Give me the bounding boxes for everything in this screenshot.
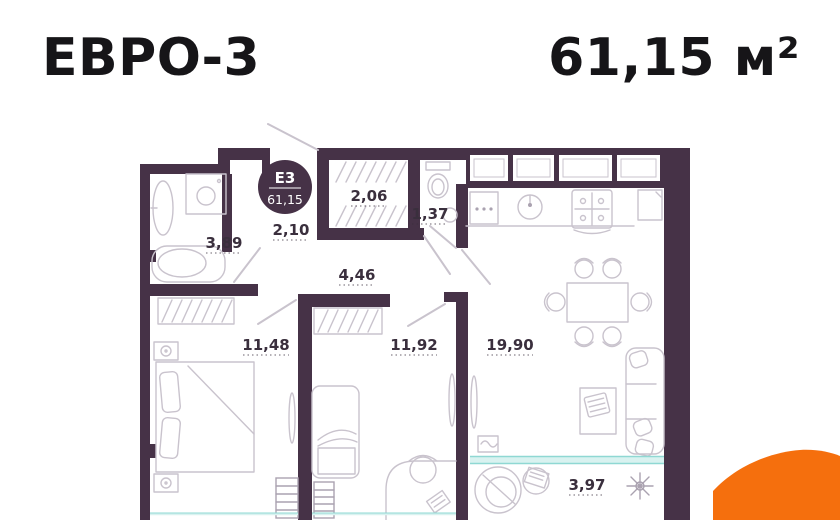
living-door-leaf-2 bbox=[462, 250, 490, 284]
stove-icon bbox=[572, 190, 612, 234]
nightstand-icon bbox=[154, 474, 178, 492]
bathroom-sink-icon bbox=[151, 181, 173, 235]
single-bed-icon bbox=[312, 386, 359, 478]
plant-icon bbox=[627, 473, 653, 499]
plant-pot-icon bbox=[478, 436, 498, 452]
dining-chairs bbox=[545, 259, 652, 347]
toilet-icon bbox=[426, 162, 450, 198]
wc-door-leaf bbox=[424, 236, 450, 274]
sofa-icon bbox=[626, 348, 664, 457]
tv-stand-icon bbox=[580, 388, 616, 434]
accent-corner-shape bbox=[713, 450, 840, 520]
room-label-bedroom-2: 11,92 bbox=[390, 336, 437, 354]
fridge-icon bbox=[638, 190, 662, 220]
kitchen-windows bbox=[470, 155, 660, 181]
room-label-bedroom-1: 11,48 bbox=[242, 336, 289, 354]
unit-badge-area: 61,15 bbox=[267, 192, 303, 207]
washing-machine-icon bbox=[186, 174, 226, 214]
room-label-kitchen-living: 19,90 bbox=[486, 336, 533, 354]
bedroom1-wardrobe-icon bbox=[158, 298, 234, 324]
dining-table bbox=[567, 283, 628, 322]
nightstand-icon bbox=[154, 342, 178, 360]
room-label-entry-hall: 2,10 bbox=[272, 221, 309, 239]
unit-badge: Е3 61,15 bbox=[258, 160, 312, 214]
floor-plan: Е3 61,15 3,89 2,10 2,06 1,37 4,46 11,48 … bbox=[0, 0, 840, 520]
room-label-wardrobe: 2,06 bbox=[350, 187, 387, 205]
double-bed-icon bbox=[156, 362, 254, 472]
radiator-icon bbox=[276, 478, 298, 518]
bedroom2-door-leaf bbox=[408, 304, 445, 326]
floorplan-card: ЕВРО-3 61,15 м² bbox=[0, 0, 840, 520]
room-label-wc: 1,37 bbox=[411, 205, 448, 223]
laptop-icon bbox=[427, 491, 451, 513]
room-label-balcony: 3,97 bbox=[568, 476, 605, 494]
tv-icon bbox=[471, 376, 477, 428]
lounge-chair-icon bbox=[475, 467, 521, 513]
bedroom2-wardrobe-icon bbox=[314, 308, 382, 334]
desk-chair-icon bbox=[409, 456, 437, 484]
unit-badge-code: Е3 bbox=[275, 169, 296, 187]
tv-icon bbox=[289, 393, 295, 443]
room-label-bathroom: 3,89 bbox=[205, 234, 242, 252]
bedroom1-door-leaf bbox=[258, 300, 296, 324]
living-door-leaf-1 bbox=[430, 226, 456, 248]
room-label-hallway: 4,46 bbox=[338, 266, 375, 284]
entrance-door-leaf bbox=[268, 124, 318, 150]
counter-dots bbox=[475, 203, 532, 211]
tv-icon bbox=[449, 374, 455, 426]
side-table-icon bbox=[523, 467, 549, 494]
desk-icon bbox=[386, 461, 456, 520]
